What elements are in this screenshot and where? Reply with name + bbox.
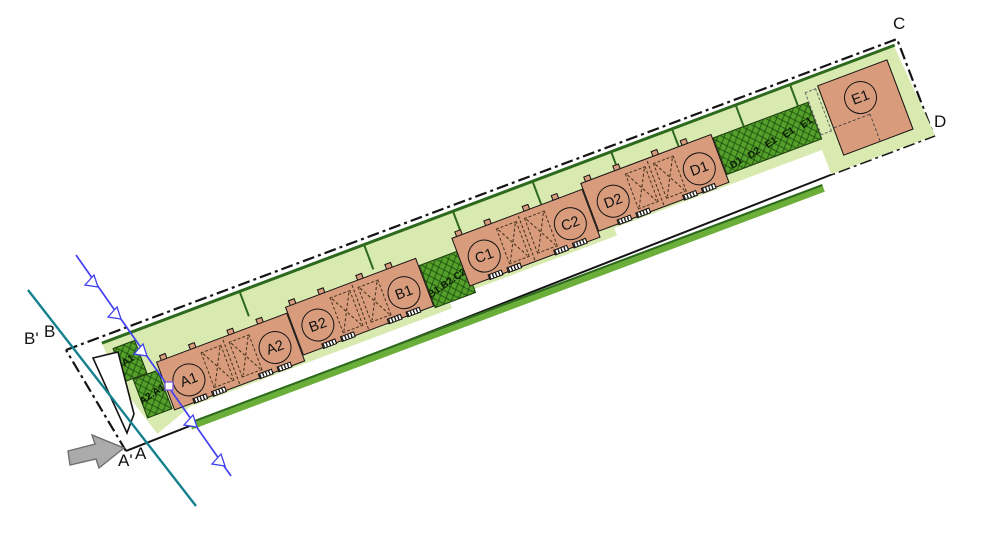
- e1-partition-line: [869, 114, 880, 141]
- parking-label: A2.A1: [138, 382, 168, 407]
- chimney: [384, 262, 393, 270]
- label-b: B: [44, 322, 55, 342]
- chimney: [612, 163, 621, 171]
- chimney: [355, 273, 364, 281]
- chimney: [188, 342, 197, 350]
- chimney: [226, 328, 235, 336]
- unit-label-E1: E1: [839, 76, 882, 119]
- parking-label: E1: [763, 135, 779, 151]
- parking-label: D1: [728, 155, 745, 171]
- entrance-arrow-icon: [68, 435, 124, 468]
- chimney: [583, 174, 592, 182]
- building-block-D: D2D1: [580, 134, 729, 232]
- site-plan-page: { "plan": { "corner_labels": { "c": "C",…: [0, 0, 985, 533]
- chimney: [651, 149, 660, 157]
- label-b-prime: B': [24, 329, 39, 349]
- e1-partition-line: [834, 114, 870, 128]
- parking-label: D2: [746, 145, 763, 161]
- label-a-prime: A': [118, 451, 133, 471]
- chimney: [159, 353, 168, 361]
- parking-label: A1: [120, 353, 137, 369]
- site-rotated: A1A2.A1B1.B2.C2.C1D1D2E1E1E1A1A2B2B1C1C2…: [100, 21, 985, 534]
- chimney: [288, 298, 297, 306]
- chimney: [551, 193, 560, 201]
- chimney: [522, 204, 531, 212]
- parking-label: E1: [799, 115, 815, 131]
- label-d: D: [934, 112, 946, 132]
- site-green-top-edge: [101, 44, 895, 344]
- chimney: [680, 138, 689, 146]
- label-a: A: [135, 444, 146, 464]
- parking-label: E1: [781, 125, 797, 141]
- chimney: [317, 287, 326, 295]
- label-c: C: [893, 14, 905, 34]
- chimney: [454, 229, 463, 237]
- chimney: [255, 317, 264, 325]
- chimney: [483, 218, 492, 226]
